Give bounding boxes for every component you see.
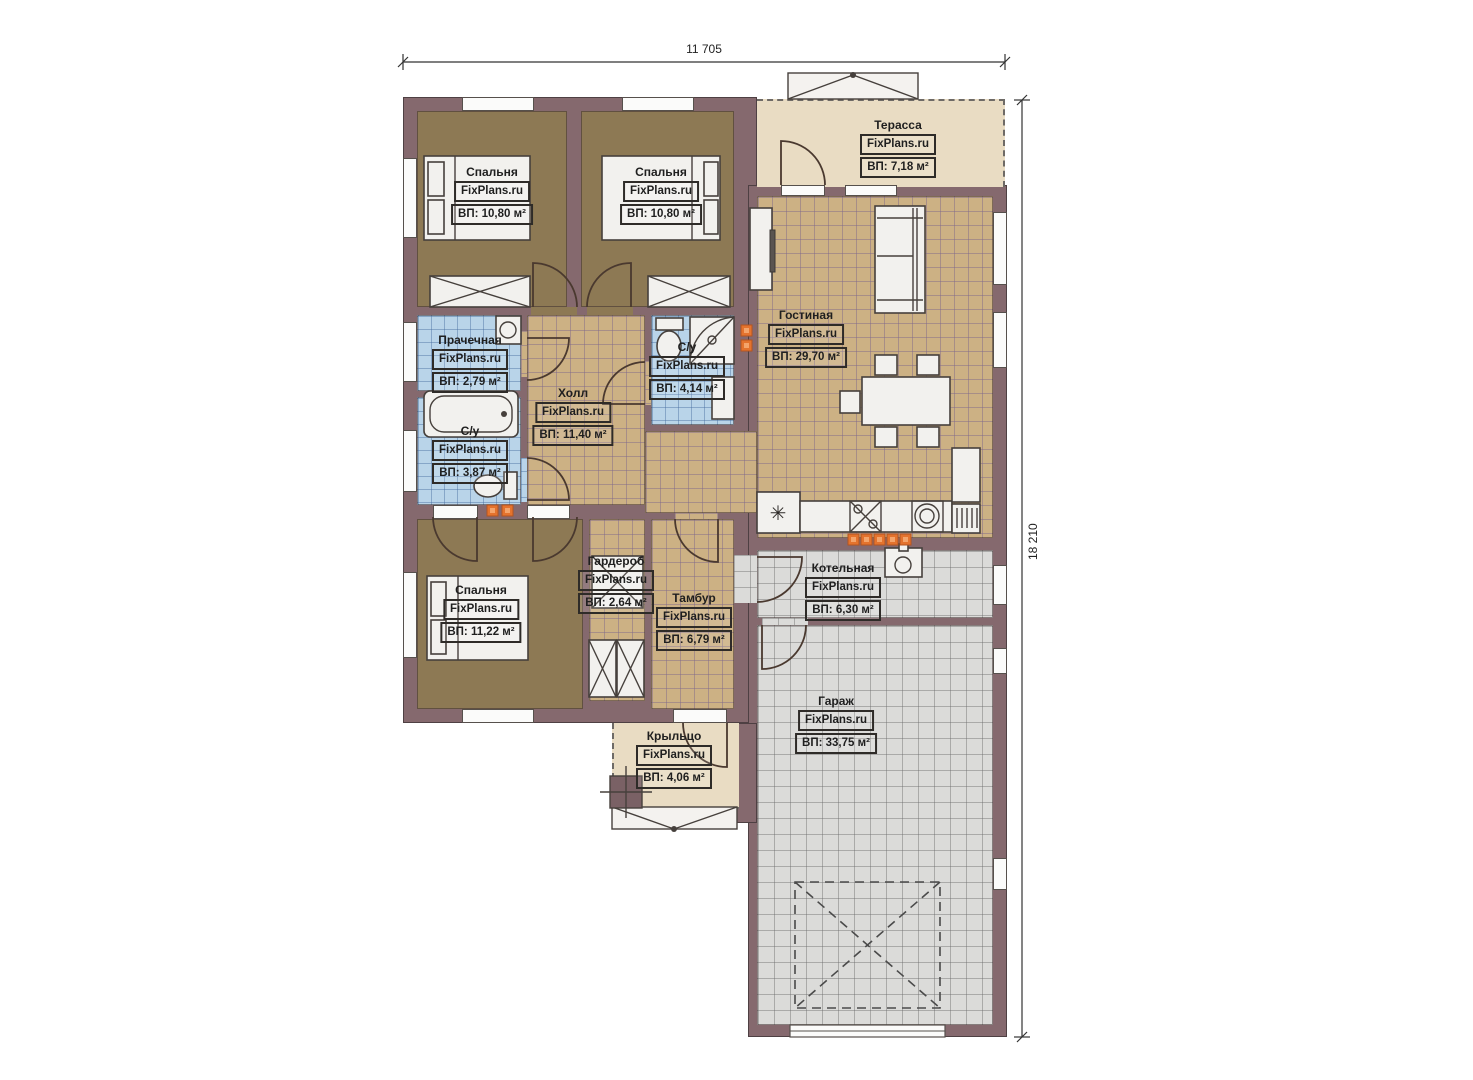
watermark-badge: FixPlans.ru: [860, 134, 936, 155]
label-bathroom-right: С/у FixPlans.ru ВП: 4,14 м²: [649, 340, 725, 400]
label-porch: Крыльцо FixPlans.ru ВП: 4,06 м²: [636, 729, 712, 789]
room-name: Терасса: [874, 118, 922, 132]
watermark-badge: FixPlans.ru: [805, 577, 881, 598]
floor-plan-canvas: ✳: [0, 0, 1473, 1080]
sofa: [875, 206, 925, 313]
garage-door: [790, 1025, 945, 1037]
room-area: ВП: 11,22 м²: [440, 622, 521, 643]
label-hall: Холл FixPlans.ru ВП: 11,40 м²: [532, 386, 613, 446]
room-name: Прачечная: [438, 333, 502, 347]
room-area: ВП: 2,64 м²: [578, 593, 654, 614]
room-area: ВП: 6,30 м²: [805, 600, 881, 621]
room-name: С/у: [678, 340, 697, 354]
watermark-badge: FixPlans.ru: [768, 324, 844, 345]
room-name: Котельная: [812, 561, 875, 575]
porch-steps: [612, 807, 737, 832]
room-name: Спальня: [635, 165, 687, 179]
plan-graphics: ✳: [0, 0, 1473, 1080]
freezer-icon: ✳: [770, 503, 787, 525]
closet-bedroom-tl: [430, 276, 530, 307]
terrace-steps: [788, 72, 918, 99]
watermark-badge: FixPlans.ru: [656, 607, 732, 628]
room-area: ВП: 11,40 м²: [532, 425, 613, 446]
label-tambour: Тамбур FixPlans.ru ВП: 6,79 м²: [656, 591, 732, 651]
boiler-basin: [885, 544, 922, 577]
room-area: ВП: 33,75 м²: [795, 733, 877, 754]
label-laundry: Прачечная FixPlans.ru ВП: 2,79 м²: [432, 333, 508, 393]
tv-console: [750, 208, 775, 290]
room-name: Спальня: [466, 165, 518, 179]
label-garage: Гараж FixPlans.ru ВП: 33,75 м²: [795, 694, 877, 754]
label-wardrobe: Гардероб FixPlans.ru ВП: 2,64 м²: [578, 554, 654, 614]
room-area: ВП: 4,06 м²: [636, 768, 712, 789]
room-area: ВП: 10,80 м²: [620, 204, 702, 225]
label-terrace: Терасса FixPlans.ru ВП: 7,18 м²: [860, 118, 936, 178]
room-area: ВП: 7,18 м²: [860, 157, 936, 178]
room-area: ВП: 4,14 м²: [649, 379, 725, 400]
label-bedroom-top-left: Спальня FixPlans.ru ВП: 10,80 м²: [451, 165, 533, 225]
dining-table: [862, 377, 950, 425]
room-area: ВП: 29,70 м²: [765, 347, 847, 368]
label-bedroom-bottom: Спальня FixPlans.ru ВП: 11,22 м²: [440, 583, 521, 643]
room-name: Гардероб: [588, 554, 645, 568]
room-area: ВП: 10,80 м²: [451, 204, 533, 225]
watermark-badge: FixPlans.ru: [578, 570, 654, 591]
garage-dashed-marking: [795, 882, 940, 1008]
watermark-badge: FixPlans.ru: [443, 599, 519, 620]
room-name: Гостиная: [779, 308, 833, 322]
room-area: ВП: 3,87 м²: [432, 463, 508, 484]
label-bedroom-top-middle: Спальня FixPlans.ru ВП: 10,80 м²: [620, 165, 702, 225]
room-name: Крыльцо: [647, 729, 702, 743]
watermark-badge: FixPlans.ru: [432, 349, 508, 370]
watermark-badge: FixPlans.ru: [535, 402, 611, 423]
dimension-width-label: 11 705: [686, 42, 722, 56]
room-area: ВП: 6,79 м²: [656, 630, 732, 651]
watermark-badge: FixPlans.ru: [432, 440, 508, 461]
label-living-room: Гостиная FixPlans.ru ВП: 29,70 м²: [765, 308, 847, 368]
label-bathroom-left: С/у FixPlans.ru ВП: 3,87 м²: [432, 424, 508, 484]
room-area: ВП: 2,79 м²: [432, 372, 508, 393]
fridge-column: [952, 448, 980, 533]
closet-bedroom-tm: [648, 276, 730, 307]
watermark-badge: FixPlans.ru: [636, 745, 712, 766]
watermark-badge: FixPlans.ru: [649, 356, 725, 377]
room-name: Спальня: [455, 583, 507, 597]
room-name: С/у: [461, 424, 480, 438]
label-boiler-room: Котельная FixPlans.ru ВП: 6,30 м²: [805, 561, 881, 621]
watermark-badge: FixPlans.ru: [454, 181, 530, 202]
room-name: Холл: [558, 386, 588, 400]
watermark-badge: FixPlans.ru: [798, 710, 874, 731]
dimension-height-label: 18 210: [1026, 523, 1040, 560]
freezer: ✳: [757, 492, 800, 533]
watermark-badge: FixPlans.ru: [623, 181, 699, 202]
room-name: Тамбур: [672, 591, 716, 605]
room-name: Гараж: [818, 694, 854, 708]
